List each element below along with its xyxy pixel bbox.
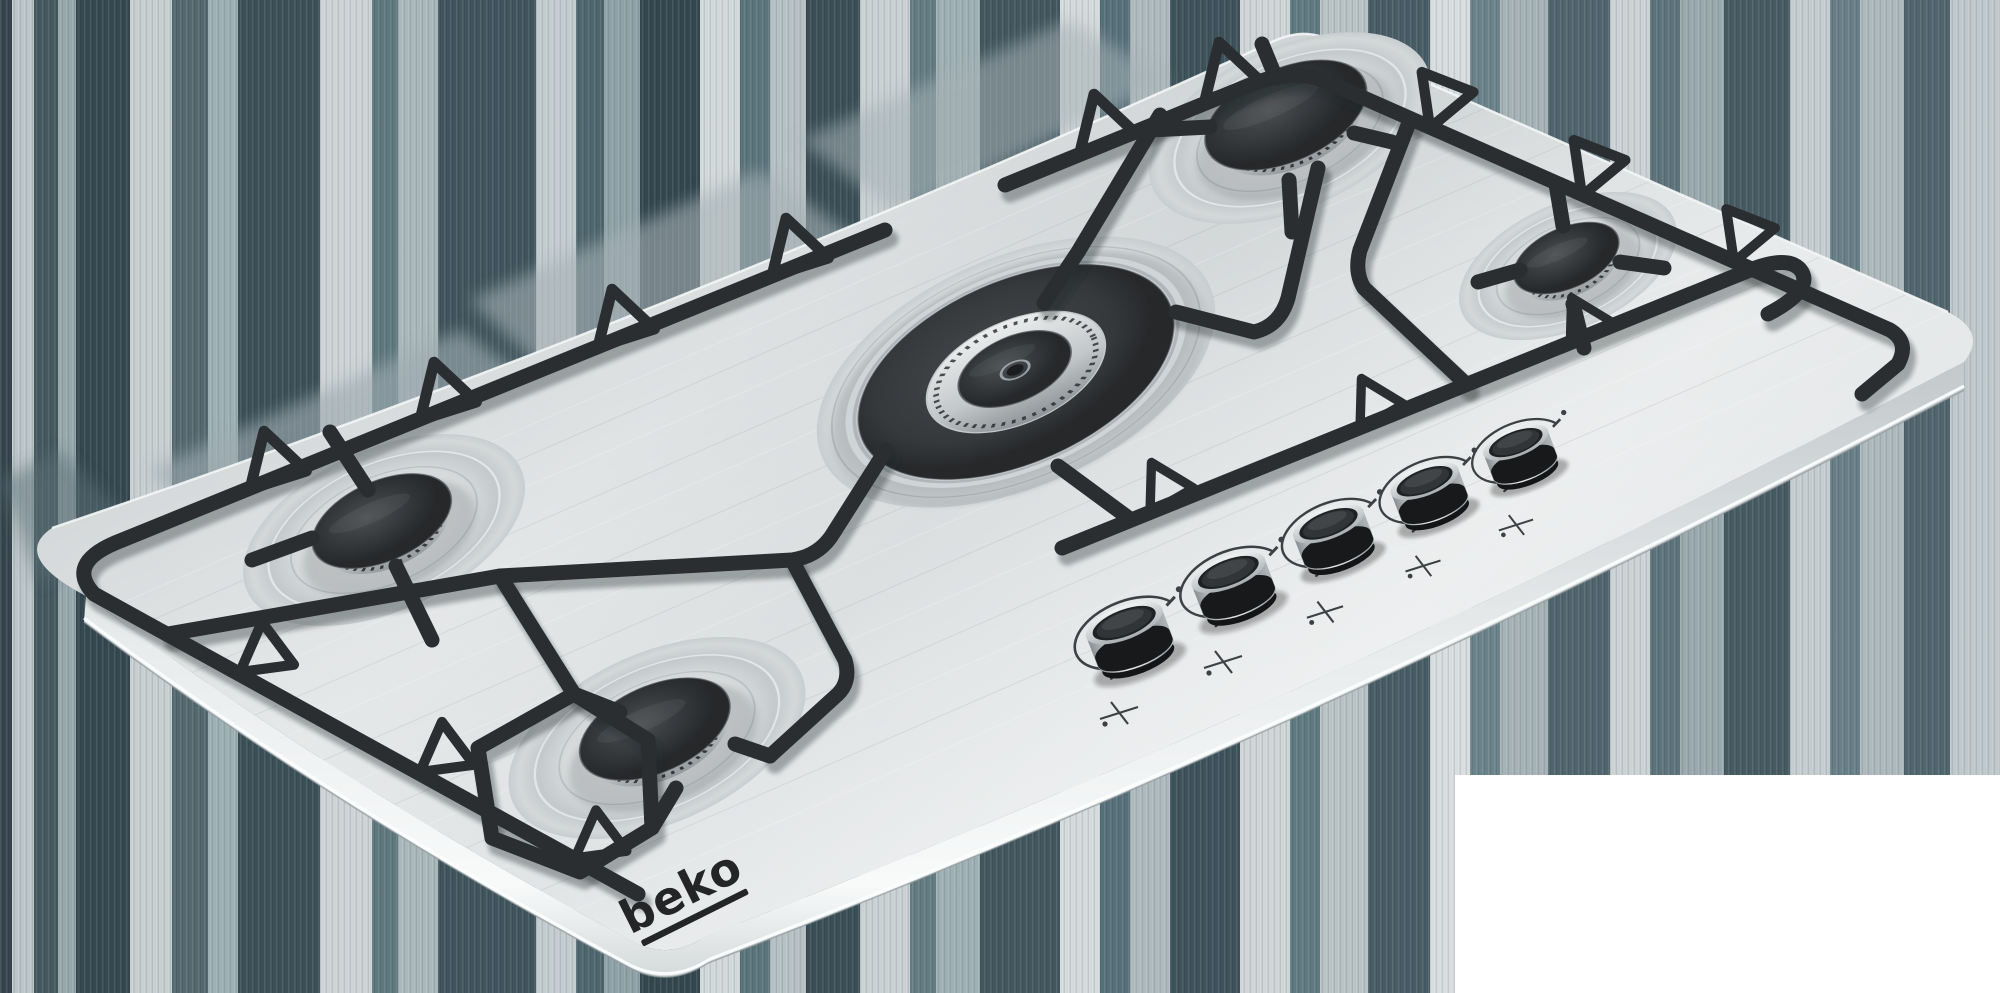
- gas-hob-product-image: beko: [0, 0, 2000, 993]
- product-screenshot: beko: [0, 0, 2000, 993]
